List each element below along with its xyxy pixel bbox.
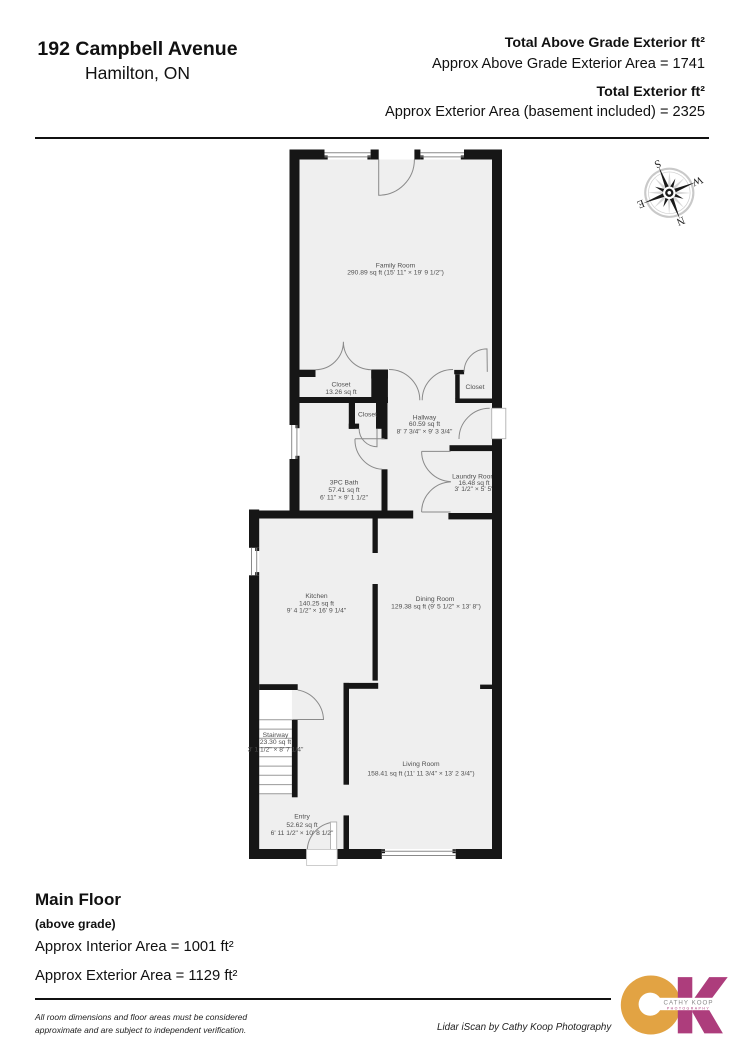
- svg-text:23.30 sq ft: 23.30 sq ft: [260, 739, 291, 746]
- svg-text:3PC Bath: 3PC Bath: [330, 480, 359, 487]
- svg-text:PHOTOGRAPHY: PHOTOGRAPHY: [667, 1007, 710, 1011]
- svg-text:52.62 sq ft: 52.62 sq ft: [286, 822, 317, 829]
- svg-text:Closet: Closet: [358, 412, 377, 419]
- svg-text:S: S: [652, 157, 662, 170]
- svg-text:Closet: Closet: [332, 381, 351, 388]
- svg-text:290.89 sq ft (15' 11" × 19' 9: 290.89 sq ft (15' 11" × 19' 9 1/2"): [347, 270, 444, 277]
- svg-text:Living Room: Living Room: [402, 761, 440, 768]
- svg-text:Closet: Closet: [466, 384, 485, 391]
- svg-text:E: E: [635, 197, 646, 211]
- svg-text:8' 7 3/4" × 9' 3 3/4": 8' 7 3/4" × 9' 3 3/4": [397, 428, 453, 435]
- svg-text:3' 1/2" × 5' 5": 3' 1/2" × 5' 5": [454, 486, 494, 493]
- svg-text:60.59 sq ft: 60.59 sq ft: [409, 421, 440, 428]
- svg-text:Dining Room: Dining Room: [416, 596, 455, 603]
- svg-text:6' 11" × 9' 1 1/2": 6' 11" × 9' 1 1/2": [320, 495, 369, 502]
- svg-text:129.38 sq ft (9' 5 1/2" × 13': 129.38 sq ft (9' 5 1/2" × 13' 8"): [391, 604, 481, 611]
- svg-text:Family Room: Family Room: [376, 263, 416, 270]
- svg-text:CATHY KOOP: CATHY KOOP: [664, 1000, 714, 1007]
- svg-text:Stairway: Stairway: [263, 732, 289, 739]
- svg-text:57.41 sq ft: 57.41 sq ft: [328, 487, 359, 494]
- svg-text:13.26 sq ft: 13.26 sq ft: [325, 389, 356, 396]
- svg-text:6' 11 1/2" × 10' 8 1/2": 6' 11 1/2" × 10' 8 1/2": [271, 830, 334, 837]
- svg-text:3' 1 1/2" × 8' 7 1/4": 3' 1 1/2" × 8' 7 1/4": [248, 746, 304, 753]
- svg-text:9' 4 1/2" × 16' 9 1/4": 9' 4 1/2" × 16' 9 1/4": [287, 607, 347, 614]
- svg-text:Kitchen: Kitchen: [305, 593, 328, 600]
- svg-text:140.25 sq ft: 140.25 sq ft: [299, 600, 334, 607]
- svg-text:Entry: Entry: [294, 814, 310, 821]
- svg-text:158.41 sq ft (11' 11 3/4" × 13: 158.41 sq ft (11' 11 3/4" × 13' 2 3/4"): [367, 770, 474, 777]
